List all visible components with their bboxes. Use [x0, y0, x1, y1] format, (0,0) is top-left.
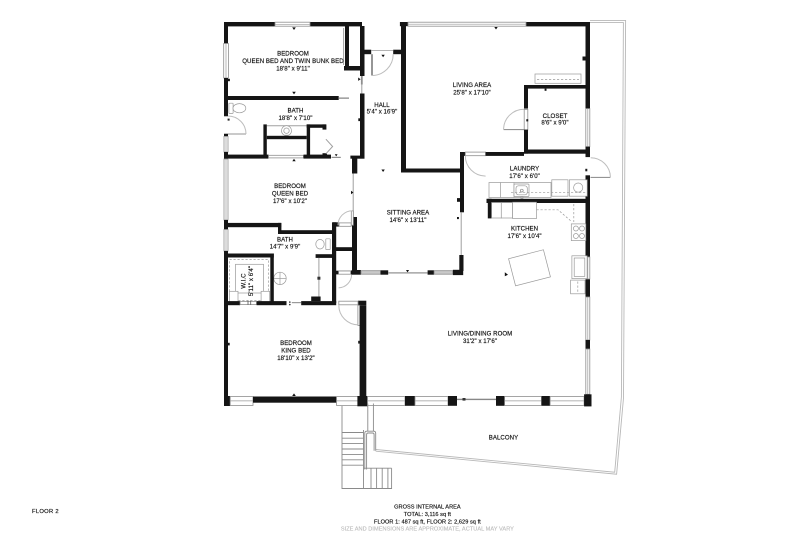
svg-text:QUEEN BED AND TWIN BUNK BED: QUEEN BED AND TWIN BUNK BED	[242, 58, 344, 65]
svg-text:SITTING AREA: SITTING AREA	[387, 209, 430, 216]
svg-text:FLOOR 2: FLOOR 2	[32, 509, 59, 515]
svg-text:GROSS INTERNAL AREA: GROSS INTERNAL AREA	[394, 505, 461, 511]
svg-text:14'6" x 13'11": 14'6" x 13'11"	[389, 217, 426, 224]
svg-text:LIVING AREA: LIVING AREA	[453, 82, 492, 89]
svg-text:31'2" x 17'6": 31'2" x 17'6"	[463, 338, 497, 345]
svg-text:FLOOR 1: 487 sq ft, FLOOR 2: 2: FLOOR 1: 487 sq ft, FLOOR 2: 2,629 sq ft	[374, 519, 481, 525]
svg-text:LAUNDRY: LAUNDRY	[510, 165, 539, 172]
svg-text:17'6" x 6'0": 17'6" x 6'0"	[509, 173, 540, 180]
svg-text:18'8" x 7'10": 18'8" x 7'10"	[278, 115, 312, 122]
svg-text:SIZE AND DIMENSIONS ARE APPROX: SIZE AND DIMENSIONS ARE APPROXIMATE, ACT…	[341, 526, 514, 532]
svg-text:KITCHEN: KITCHEN	[511, 225, 538, 232]
svg-text:BEDROOM: BEDROOM	[274, 183, 306, 190]
svg-text:BEDROOM: BEDROOM	[277, 50, 309, 57]
svg-text:17'6" x 10'4": 17'6" x 10'4"	[508, 233, 542, 240]
svg-text:KING BED: KING BED	[281, 347, 311, 354]
svg-text:17'6" x 10'2": 17'6" x 10'2"	[273, 198, 307, 205]
svg-text:BALCONY: BALCONY	[489, 435, 518, 442]
svg-text:QUEEN BED: QUEEN BED	[272, 190, 309, 197]
svg-text:BATH: BATH	[288, 108, 304, 115]
svg-text:W.I.C: W.I.C	[241, 273, 248, 289]
svg-text:BEDROOM: BEDROOM	[280, 340, 312, 347]
svg-text:TOTAL: 3,116 sq ft: TOTAL: 3,116 sq ft	[404, 512, 452, 518]
svg-text:25'8" x 17'10": 25'8" x 17'10"	[453, 89, 491, 96]
svg-text:LIVING/DINING ROOM: LIVING/DINING ROOM	[448, 331, 513, 338]
svg-text:18'10" x 13'2": 18'10" x 13'2"	[277, 355, 315, 362]
svg-text:18'8" x 9'11": 18'8" x 9'11"	[276, 65, 310, 72]
svg-text:5'4" x 16'9": 5'4" x 16'9"	[367, 108, 398, 115]
svg-text:5'11" x 6'4": 5'11" x 6'4"	[248, 266, 255, 296]
svg-text:14'7" x 9'9": 14'7" x 9'9"	[270, 244, 301, 251]
svg-text:8'6" x 9'0": 8'6" x 9'0"	[541, 119, 568, 126]
svg-text:BATH: BATH	[277, 237, 293, 244]
